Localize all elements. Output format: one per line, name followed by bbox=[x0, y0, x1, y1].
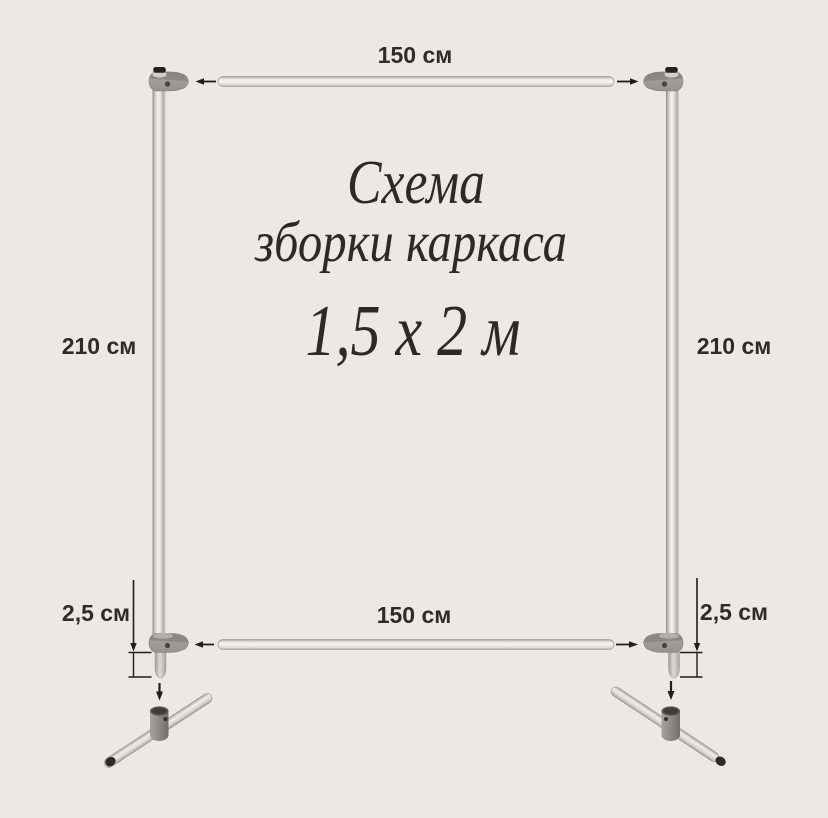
svg-text:1,5 х 2 м: 1,5 х 2 м bbox=[306, 290, 521, 371]
svg-text:2,5 см: 2,5 см bbox=[62, 600, 130, 626]
svg-text:Схема: Схема bbox=[347, 149, 485, 217]
svg-text:зборки каркаса: зборки каркаса bbox=[254, 211, 567, 274]
svg-text:150 см: 150 см bbox=[377, 602, 452, 628]
svg-text:2,5 см: 2,5 см bbox=[700, 599, 768, 625]
svg-text:150 см: 150 см bbox=[378, 42, 453, 68]
svg-text:210 см: 210 см bbox=[697, 333, 772, 359]
svg-text:210 см: 210 см bbox=[62, 333, 137, 359]
